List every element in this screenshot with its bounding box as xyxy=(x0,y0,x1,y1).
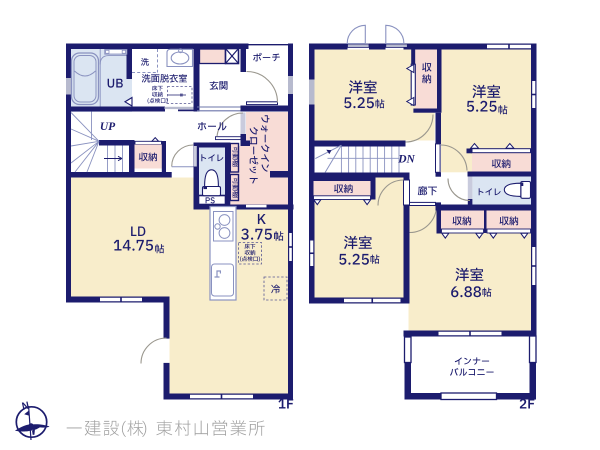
svg-text:UP: UP xyxy=(100,121,116,133)
svg-text:DN: DN xyxy=(397,154,415,166)
